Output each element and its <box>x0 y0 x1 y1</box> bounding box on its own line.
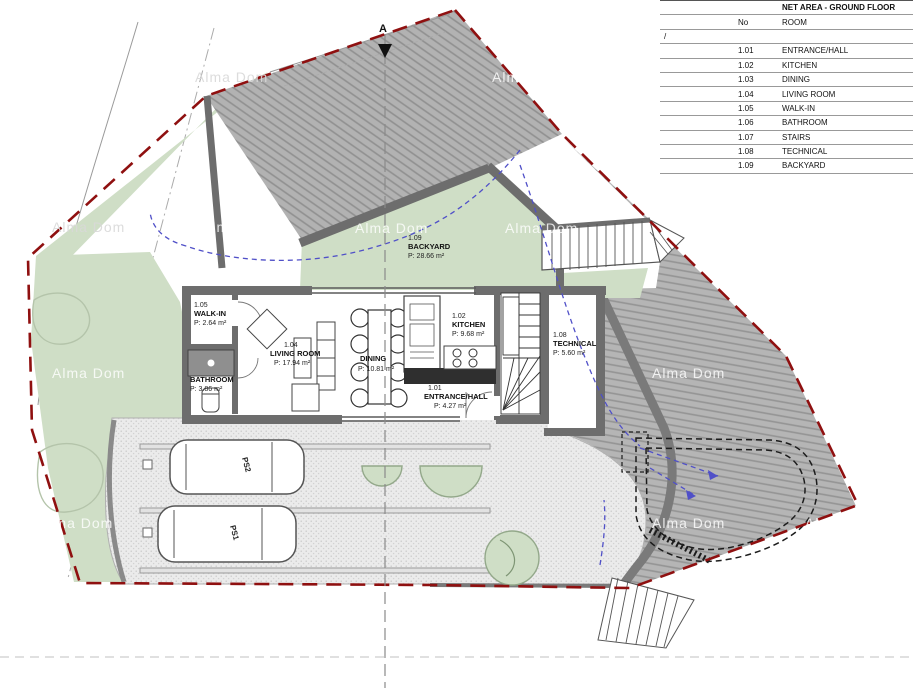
svg-text:ENTRANCE/HALL: ENTRANCE/HALL <box>424 392 488 401</box>
svg-text:DINING: DINING <box>360 354 386 363</box>
row-room: LIVING ROOM <box>782 90 913 99</box>
watermark: Alma Dom <box>52 365 125 381</box>
svg-text:WALK-IN: WALK-IN <box>194 309 226 318</box>
svg-text:1.08: 1.08 <box>553 332 567 339</box>
watermark: Alma Dom <box>652 365 725 381</box>
svg-text:P: 17.94 m²: P: 17.94 m² <box>274 360 311 367</box>
svg-text:P: 10.81 m²: P: 10.81 m² <box>358 366 395 373</box>
row-no: 1.05 <box>738 104 782 113</box>
table-slash-row: / <box>660 30 913 44</box>
table-row: 1.05WALK-IN <box>660 102 913 116</box>
row-no: 1.01 <box>738 46 782 55</box>
svg-text:1.01: 1.01 <box>428 385 442 392</box>
table-row: 1.06BATHROOM <box>660 116 913 130</box>
table-row: 1.09BACKYARD <box>660 159 913 173</box>
car-ps1 <box>158 506 296 562</box>
car-ps2 <box>170 440 304 494</box>
net-area-table: NET AREA - GROUND FLOOR No ROOM / 1.01EN… <box>660 0 913 174</box>
row-room: ENTRANCE/HALL <box>782 46 913 55</box>
svg-text:P: 2.64 m²: P: 2.64 m² <box>194 320 227 327</box>
table-row: 1.02KITCHEN <box>660 59 913 73</box>
svg-text:KITCHEN: KITCHEN <box>452 320 485 329</box>
svg-text:BATHROOM: BATHROOM <box>190 375 234 384</box>
row-no: 1.04 <box>738 90 782 99</box>
watermark: Alma Dom <box>805 515 878 531</box>
watermark: Alma Dom <box>355 220 428 236</box>
slash-cell: / <box>660 32 738 41</box>
technical-room-floor <box>548 290 602 432</box>
svg-text:P: 5.60 m²: P: 5.60 m² <box>553 350 586 357</box>
row-no: 1.07 <box>738 133 782 142</box>
interior-stairs <box>501 293 540 414</box>
row-no: 1.02 <box>738 61 782 70</box>
site-plan-page: PS2 PS1 <box>0 0 913 690</box>
svg-text:LIVING ROOM: LIVING ROOM <box>270 349 320 358</box>
coffee-table <box>292 384 319 411</box>
table-row: 1.03DINING <box>660 73 913 87</box>
col-header-no: No <box>738 18 782 27</box>
tree-circle <box>485 531 539 585</box>
svg-text:P: 3.86 m²: P: 3.86 m² <box>190 386 223 393</box>
watermark: Alma Dom <box>652 515 725 531</box>
row-room: BATHROOM <box>782 118 913 127</box>
svg-text:1.04: 1.04 <box>284 342 298 349</box>
watermark: Alma Dom <box>492 69 565 85</box>
table-title-row: NET AREA - GROUND FLOOR <box>660 1 913 15</box>
section-marker-label: A <box>379 23 387 35</box>
table-title: NET AREA - GROUND FLOOR <box>660 3 895 12</box>
row-no: 1.08 <box>738 147 782 156</box>
svg-text:BACKYARD: BACKYARD <box>408 242 451 251</box>
svg-text:1.09: 1.09 <box>408 235 422 242</box>
svg-text:1.02: 1.02 <box>452 313 466 320</box>
table-header-row: No ROOM <box>660 15 913 29</box>
table-row: 1.08TECHNICAL <box>660 145 913 159</box>
row-no: 1.03 <box>738 75 782 84</box>
svg-text:TECHNICAL: TECHNICAL <box>553 339 597 348</box>
watermark: Alma Dom <box>52 219 125 235</box>
svg-text:P: 9.68 m²: P: 9.68 m² <box>452 331 485 338</box>
row-room: DINING <box>782 75 913 84</box>
row-room: WALK-IN <box>782 104 913 113</box>
row-no: 1.06 <box>738 118 782 127</box>
watermark: Alma Dom <box>505 220 578 236</box>
row-room: STAIRS <box>782 133 913 142</box>
row-room: KITCHEN <box>782 61 913 70</box>
table-row: 1.04LIVING ROOM <box>660 87 913 101</box>
watermark: Alma Dom <box>202 219 275 235</box>
col-header-room: ROOM <box>782 18 913 27</box>
row-no: 1.09 <box>738 161 782 170</box>
table-row: 1.07STAIRS <box>660 131 913 145</box>
svg-text:1.05: 1.05 <box>194 302 208 309</box>
svg-text:P: 28.66 m²: P: 28.66 m² <box>408 253 445 260</box>
row-room: BACKYARD <box>782 161 913 170</box>
watermark: Alma Dom <box>195 69 268 85</box>
svg-text:P: 4.27 m²: P: 4.27 m² <box>434 403 467 410</box>
table-row: 1.01ENTRANCE/HALL <box>660 44 913 58</box>
watermark: Alma Dom <box>40 515 113 531</box>
row-room: TECHNICAL <box>782 147 913 156</box>
